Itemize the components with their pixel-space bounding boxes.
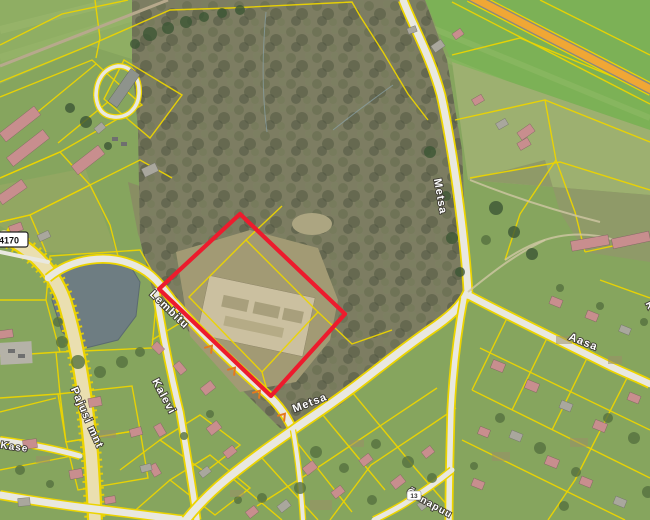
svg-text:4170: 4170	[0, 236, 19, 246]
svg-text:13: 13	[410, 493, 418, 500]
aerial-map-view[interactable]: Metsa Metsa Aasa Lembitu Kalevi Pajusi m…	[0, 0, 650, 520]
house-number-label: 13	[407, 491, 421, 500]
road-number-badge: 4170	[0, 232, 28, 247]
map-canvas[interactable]: Metsa Metsa Aasa Lembitu Kalevi Pajusi m…	[0, 0, 650, 520]
